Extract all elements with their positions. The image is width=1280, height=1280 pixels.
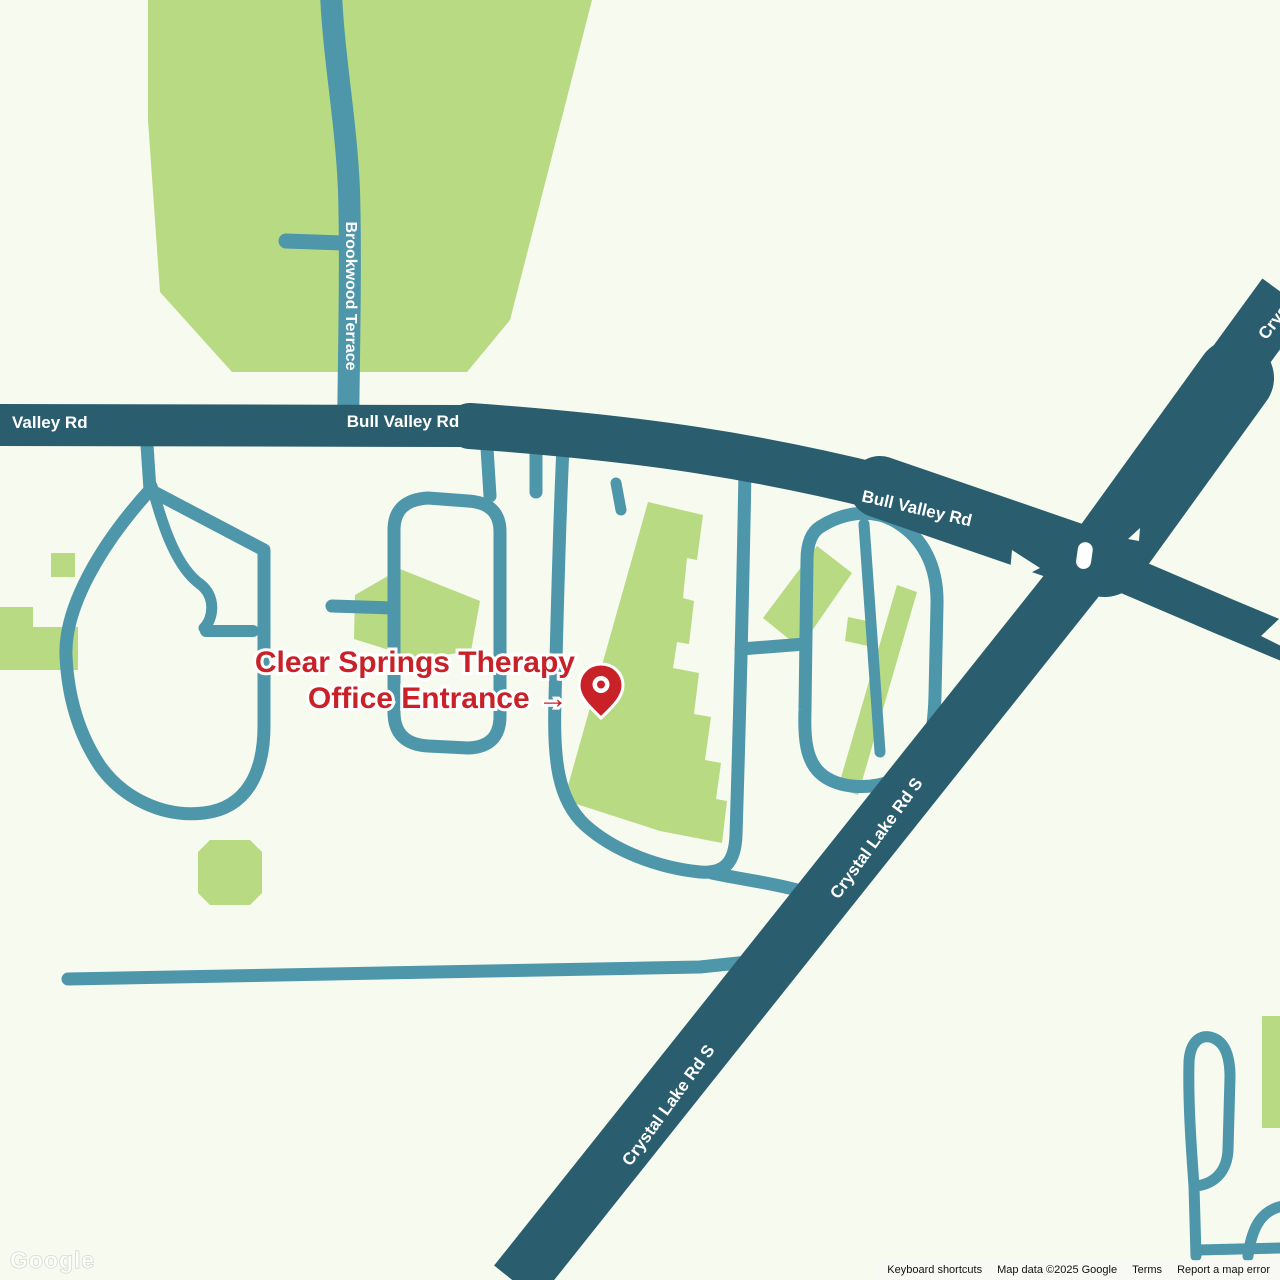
pin-hole [597,681,605,689]
attribution-bar: Keyboard shortcuts Map data ©2025 Google… [875,1260,1280,1280]
parcel-connector-stub [741,644,805,649]
brookwood-side-stub [286,241,343,243]
map-canvas[interactable]: Valley Rd Bull Valley Rd Bull Valley Rd … [0,0,1280,1280]
report-map-error-link[interactable]: Report a map error [1177,1264,1270,1276]
label-bull-valley-rd-west: Bull Valley Rd [347,412,459,431]
destination-annotation: Clear Springs Therapy Office Entrance → [255,646,623,718]
annotation-line1: Clear Springs Therapy [255,646,575,679]
mid-loop-connector [487,448,490,496]
google-watermark: Google [10,1247,95,1273]
terms-link[interactable]: Terms [1132,1264,1162,1276]
map-data-text: Map data ©2025 Google [997,1264,1117,1276]
keyboard-shortcuts-link[interactable]: Keyboard shortcuts [887,1264,982,1276]
mid-loop-stub [332,606,394,608]
annotation-line2: Office Entrance → [308,682,568,715]
label-brookwood-terrace: Brookwood Terrace [342,221,359,370]
label-valley-rd: Valley Rd [12,413,88,432]
bottom-right-road [1198,1248,1280,1250]
center-parcel-stub [616,483,621,510]
building-small-square [51,553,75,577]
park-octagon [198,840,262,905]
park-right-edge [1262,1016,1280,1128]
